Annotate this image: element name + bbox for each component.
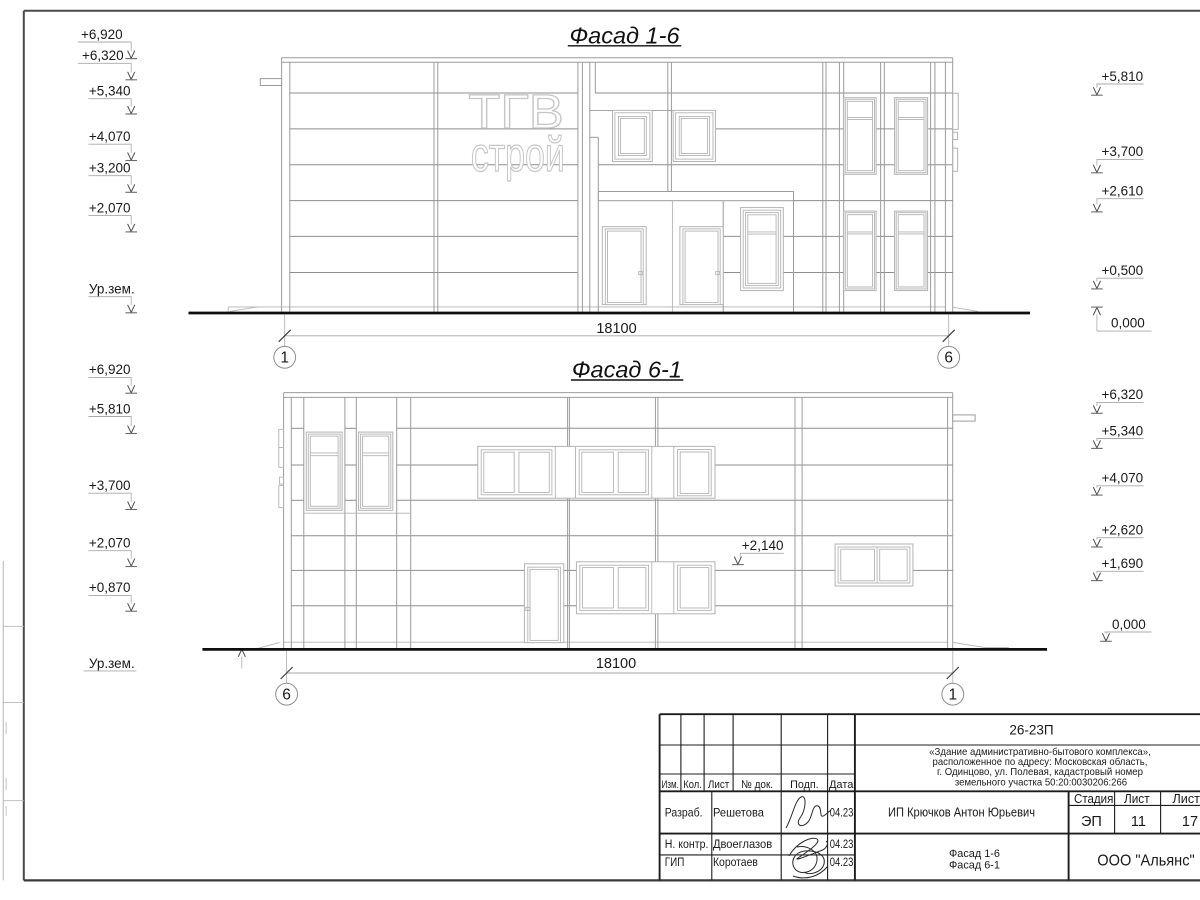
svg-text:Дата: Дата	[829, 779, 854, 791]
svg-text:«Здание административно-бытово: «Здание административно-бытового комплек…	[929, 746, 1151, 758]
svg-text:Лист: Лист	[1124, 792, 1150, 806]
svg-text:+4,070: +4,070	[1102, 471, 1144, 486]
svg-text:Фасад 6-1: Фасад 6-1	[949, 859, 1000, 871]
svg-text:Подп.: Подп.	[790, 779, 819, 791]
svg-text:18100: 18100	[596, 656, 636, 672]
svg-text:земельного участка 50:20:00302: земельного участка 50:20:0030206:266	[955, 777, 1127, 788]
svg-text:+6,320: +6,320	[82, 48, 124, 63]
svg-text:+2,070: +2,070	[89, 536, 131, 551]
svg-text:Фасад 6-1: Фасад 6-1	[572, 356, 682, 382]
svg-text:ООО "Альянс": ООО "Альянс"	[1097, 853, 1194, 870]
svg-text:1: 1	[948, 687, 957, 704]
svg-text:Фасад 1-6: Фасад 1-6	[569, 22, 680, 48]
svg-text:04.23: 04.23	[830, 808, 854, 820]
svg-text:№ док.: № док.	[741, 779, 773, 791]
svg-text:04.23: 04.23	[830, 839, 854, 851]
svg-text:+0,500: +0,500	[1102, 263, 1144, 278]
svg-text:+6,920: +6,920	[89, 362, 131, 377]
svg-text:26-23П: 26-23П	[1009, 723, 1053, 738]
svg-text:Кол.: Кол.	[683, 779, 702, 791]
svg-text:ИП Крючков Антон Юрьевич: ИП Крючков Антон Юрьевич	[888, 805, 1035, 820]
svg-text:Коротаев: Коротаев	[713, 855, 758, 869]
svg-text:+6,920: +6,920	[81, 27, 123, 42]
svg-text:+2,070: +2,070	[89, 200, 131, 215]
svg-text:+2,140: +2,140	[742, 538, 784, 553]
svg-text:17: 17	[1182, 814, 1198, 830]
svg-text:+3,700: +3,700	[89, 478, 131, 493]
svg-text:0,000: 0,000	[1112, 617, 1146, 632]
svg-text:Двоеглазов: Двоеглазов	[713, 837, 772, 851]
svg-text:Ур.зем.: Ур.зем.	[89, 282, 135, 297]
svg-text:Н. контр.: Н. контр.	[665, 837, 709, 851]
svg-text:строй: строй	[471, 128, 565, 182]
svg-text:Фасад 1-6: Фасад 1-6	[949, 848, 1000, 860]
svg-text:+0,870: +0,870	[89, 580, 131, 595]
svg-text:+6,320: +6,320	[1102, 387, 1144, 402]
svg-text:18100: 18100	[596, 321, 636, 337]
svg-text:11: 11	[1131, 814, 1146, 830]
svg-text:+5,810: +5,810	[89, 401, 131, 416]
svg-text:0,000: 0,000	[1111, 316, 1145, 331]
svg-text:Решетова: Решетова	[713, 806, 764, 820]
svg-text:ЭП: ЭП	[1081, 814, 1102, 830]
svg-text:+4,070: +4,070	[89, 129, 131, 144]
svg-text:1: 1	[280, 350, 289, 367]
svg-text:Листов: Листов	[1173, 792, 1200, 806]
svg-text:+2,610: +2,610	[1102, 184, 1144, 199]
svg-text:+5,810: +5,810	[1102, 69, 1144, 84]
svg-text:ГИП: ГИП	[665, 855, 685, 869]
svg-text:04.23: 04.23	[830, 857, 854, 869]
svg-text:расположенное по адресу: Моско: расположенное по адресу: Московская обла…	[933, 756, 1148, 768]
svg-text:+2,620: +2,620	[1102, 523, 1144, 538]
svg-text:+3,700: +3,700	[1102, 144, 1144, 159]
svg-text:+1,690: +1,690	[1102, 556, 1144, 571]
svg-text:Стадия: Стадия	[1074, 792, 1113, 806]
svg-text:Ур.зем.: Ур.зем.	[89, 656, 135, 671]
svg-text:+5,340: +5,340	[89, 84, 131, 99]
svg-text:Лист: Лист	[708, 779, 730, 791]
svg-text:Изм.: Изм.	[661, 779, 679, 791]
svg-text:6: 6	[944, 350, 953, 367]
svg-text:+5,340: +5,340	[1102, 423, 1144, 438]
svg-text:+3,200: +3,200	[89, 161, 131, 176]
svg-text:Разраб.: Разраб.	[665, 806, 703, 820]
svg-text:6: 6	[282, 687, 291, 704]
